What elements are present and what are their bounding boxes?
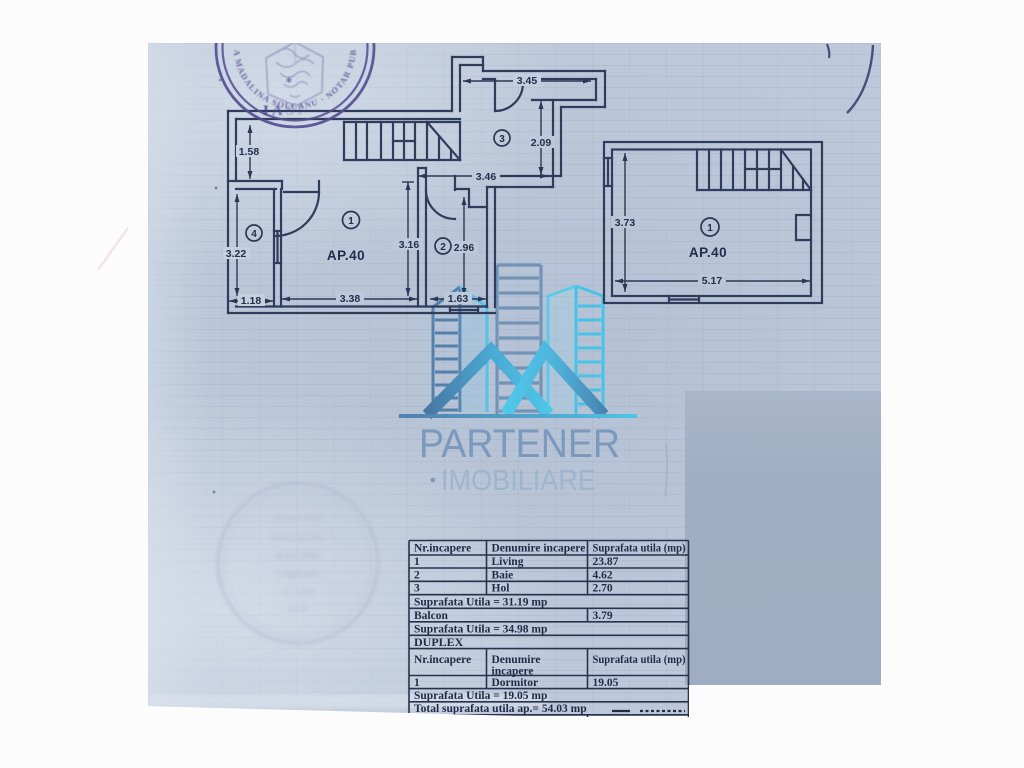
svg-text:Legalizare: Legalizare [277,569,320,580]
svg-text:2.09: 2.09 [531,137,552,149]
svg-text:3: 3 [499,134,505,145]
svg-text:Suprafata utila (mp): Suprafata utila (mp) [593,543,686,555]
svg-text:Baie: Baie [492,569,514,581]
svg-text:PARTENER: PARTENER [419,422,620,466]
svg-text:Suprafata Utila = 19.05 mp: Suprafata Utila = 19.05 mp [414,690,547,702]
svg-text:19.05: 19.05 [593,677,619,689]
svg-text:ROMANIA: ROMANIA [274,514,323,525]
svg-text:Nr.incapere: Nr.incapere [414,543,471,555]
svg-text:MADALINA: MADALINA [271,533,326,544]
svg-text:Denumire incapere: Denumire incapere [492,543,586,555]
svg-text:Hol: Hol [492,583,510,595]
svg-text:IASI: IASI [263,103,306,119]
svg-text:IASI: IASI [288,604,307,615]
svg-text:3.45: 3.45 [517,75,538,87]
svg-text:3.79: 3.79 [593,610,613,622]
svg-text:3.73: 3.73 [615,217,636,229]
svg-text:3.22: 3.22 [226,248,247,260]
svg-text:Suprafata utila (mp): Suprafata utila (mp) [593,654,686,666]
svg-text:2: 2 [414,569,420,581]
svg-text:Denumire: Denumire [492,654,541,666]
svg-text:AP.40: AP.40 [689,245,727,260]
svg-text:3: 3 [414,583,420,595]
svg-text:Nr.incapere: Nr.incapere [414,654,471,666]
svg-text:1: 1 [414,556,420,568]
svg-text:IMOBILIARE: IMOBILIARE [441,465,596,497]
svg-text:4.62: 4.62 [593,569,613,581]
svg-text:3.46: 3.46 [476,171,497,183]
svg-text:SOLCANU: SOLCANU [274,551,322,562]
svg-text:✱: ✱ [286,76,293,85]
svg-text:Suprafata Utila = 34.98 mp: Suprafata Utila = 34.98 mp [414,623,547,635]
svg-text:DUPLEX: DUPLEX [414,635,464,649]
svg-text:Balcon: Balcon [414,610,448,622]
svg-text:4: 4 [251,229,257,240]
svg-text:2.70: 2.70 [593,583,613,595]
svg-text:1: 1 [348,216,354,227]
svg-text:1: 1 [414,677,420,689]
svg-text:5.17: 5.17 [702,275,723,287]
svg-text:Dormitor: Dormitor [492,677,539,689]
svg-text:2: 2 [440,242,446,253]
svg-text:Living: Living [492,556,524,568]
svg-text:3.16: 3.16 [399,239,420,251]
svg-text:23.87: 23.87 [593,556,619,568]
svg-text:nr. 2259: nr. 2259 [282,587,315,598]
svg-text:Suprafata Utila = 31.19 mp: Suprafata Utila = 31.19 mp [414,596,547,608]
svg-text:incapere: incapere [492,666,534,678]
svg-text:AP.40: AP.40 [327,248,365,263]
svg-text:1.63: 1.63 [448,293,469,305]
svg-text:Total suprafata utila ap.= 54.: Total suprafata utila ap.= 54.03 mp [414,703,587,715]
svg-text:2.96: 2.96 [454,242,475,254]
svg-text:1.58: 1.58 [239,146,260,158]
svg-text:1: 1 [707,223,713,234]
svg-text:1.18: 1.18 [241,295,262,307]
svg-text:3.38: 3.38 [340,293,361,305]
